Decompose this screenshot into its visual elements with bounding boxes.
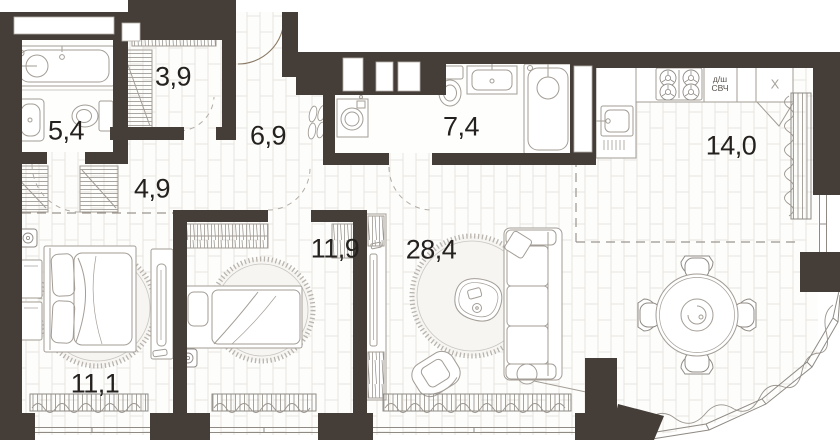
bathtub-large-bathroom <box>524 64 572 154</box>
floor-plan-drawing <box>0 0 840 440</box>
sink-large-bathroom <box>467 62 517 94</box>
coffee-table <box>455 279 502 321</box>
stove <box>656 68 702 100</box>
bathtub-small-bathroom <box>14 46 114 86</box>
bed-master <box>44 246 136 352</box>
dresser-mirror-master <box>151 249 173 359</box>
tv-unit <box>366 214 386 400</box>
hallway-closet-mid <box>80 166 118 212</box>
bed-single <box>184 286 302 348</box>
kitchen-counter-left <box>593 66 636 158</box>
washing-machine <box>337 96 368 138</box>
shelf-bedroom-small-right <box>332 224 354 258</box>
bookshelf-bedroom-small <box>178 224 268 248</box>
sofa <box>504 228 562 380</box>
floor-plan: 5,4 3,9 4,9 6,9 7,4 14,0 11,9 28,4 11,1 … <box>0 0 840 440</box>
